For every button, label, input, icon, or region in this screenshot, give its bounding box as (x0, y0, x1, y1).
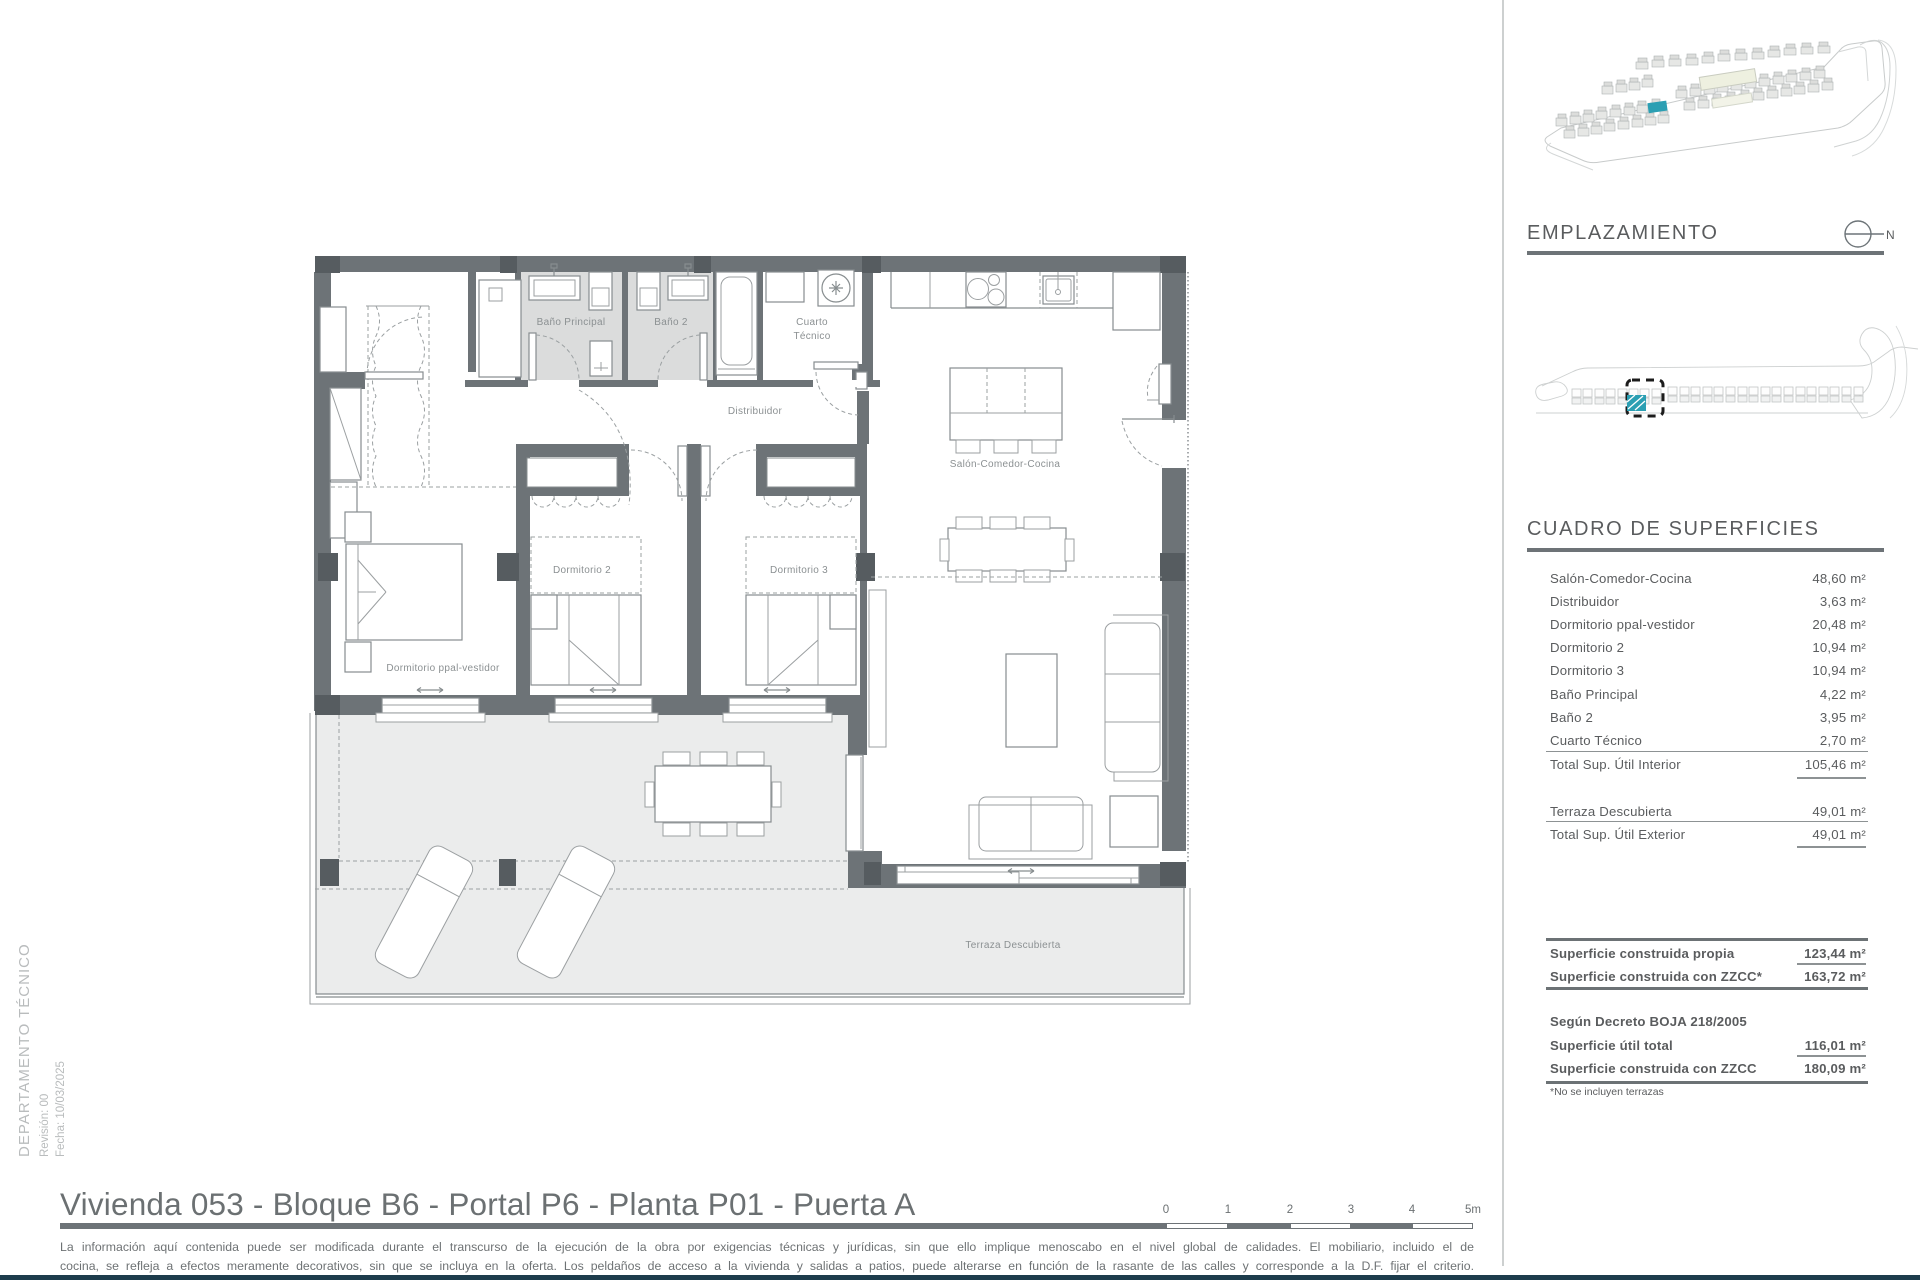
svg-text:N: N (1886, 228, 1895, 242)
svg-text:Dormitorio 2: Dormitorio 2 (553, 565, 611, 576)
svg-text:Baño 2: Baño 2 (654, 317, 688, 328)
svg-text:Distribuidor: Distribuidor (728, 406, 783, 417)
svg-text:Terraza Descubierta: Terraza Descubierta (965, 940, 1060, 951)
svg-text:Baño Principal: Baño Principal (537, 317, 606, 328)
svg-text:Salón-Comedor-Cocina: Salón-Comedor-Cocina (950, 459, 1061, 470)
svg-text:Cuarto: Cuarto (796, 317, 828, 328)
svg-text:Dormitorio ppal-vestidor: Dormitorio ppal-vestidor (386, 663, 500, 674)
svg-text:Técnico: Técnico (793, 331, 830, 342)
svg-text:Dormitorio 3: Dormitorio 3 (770, 565, 828, 576)
